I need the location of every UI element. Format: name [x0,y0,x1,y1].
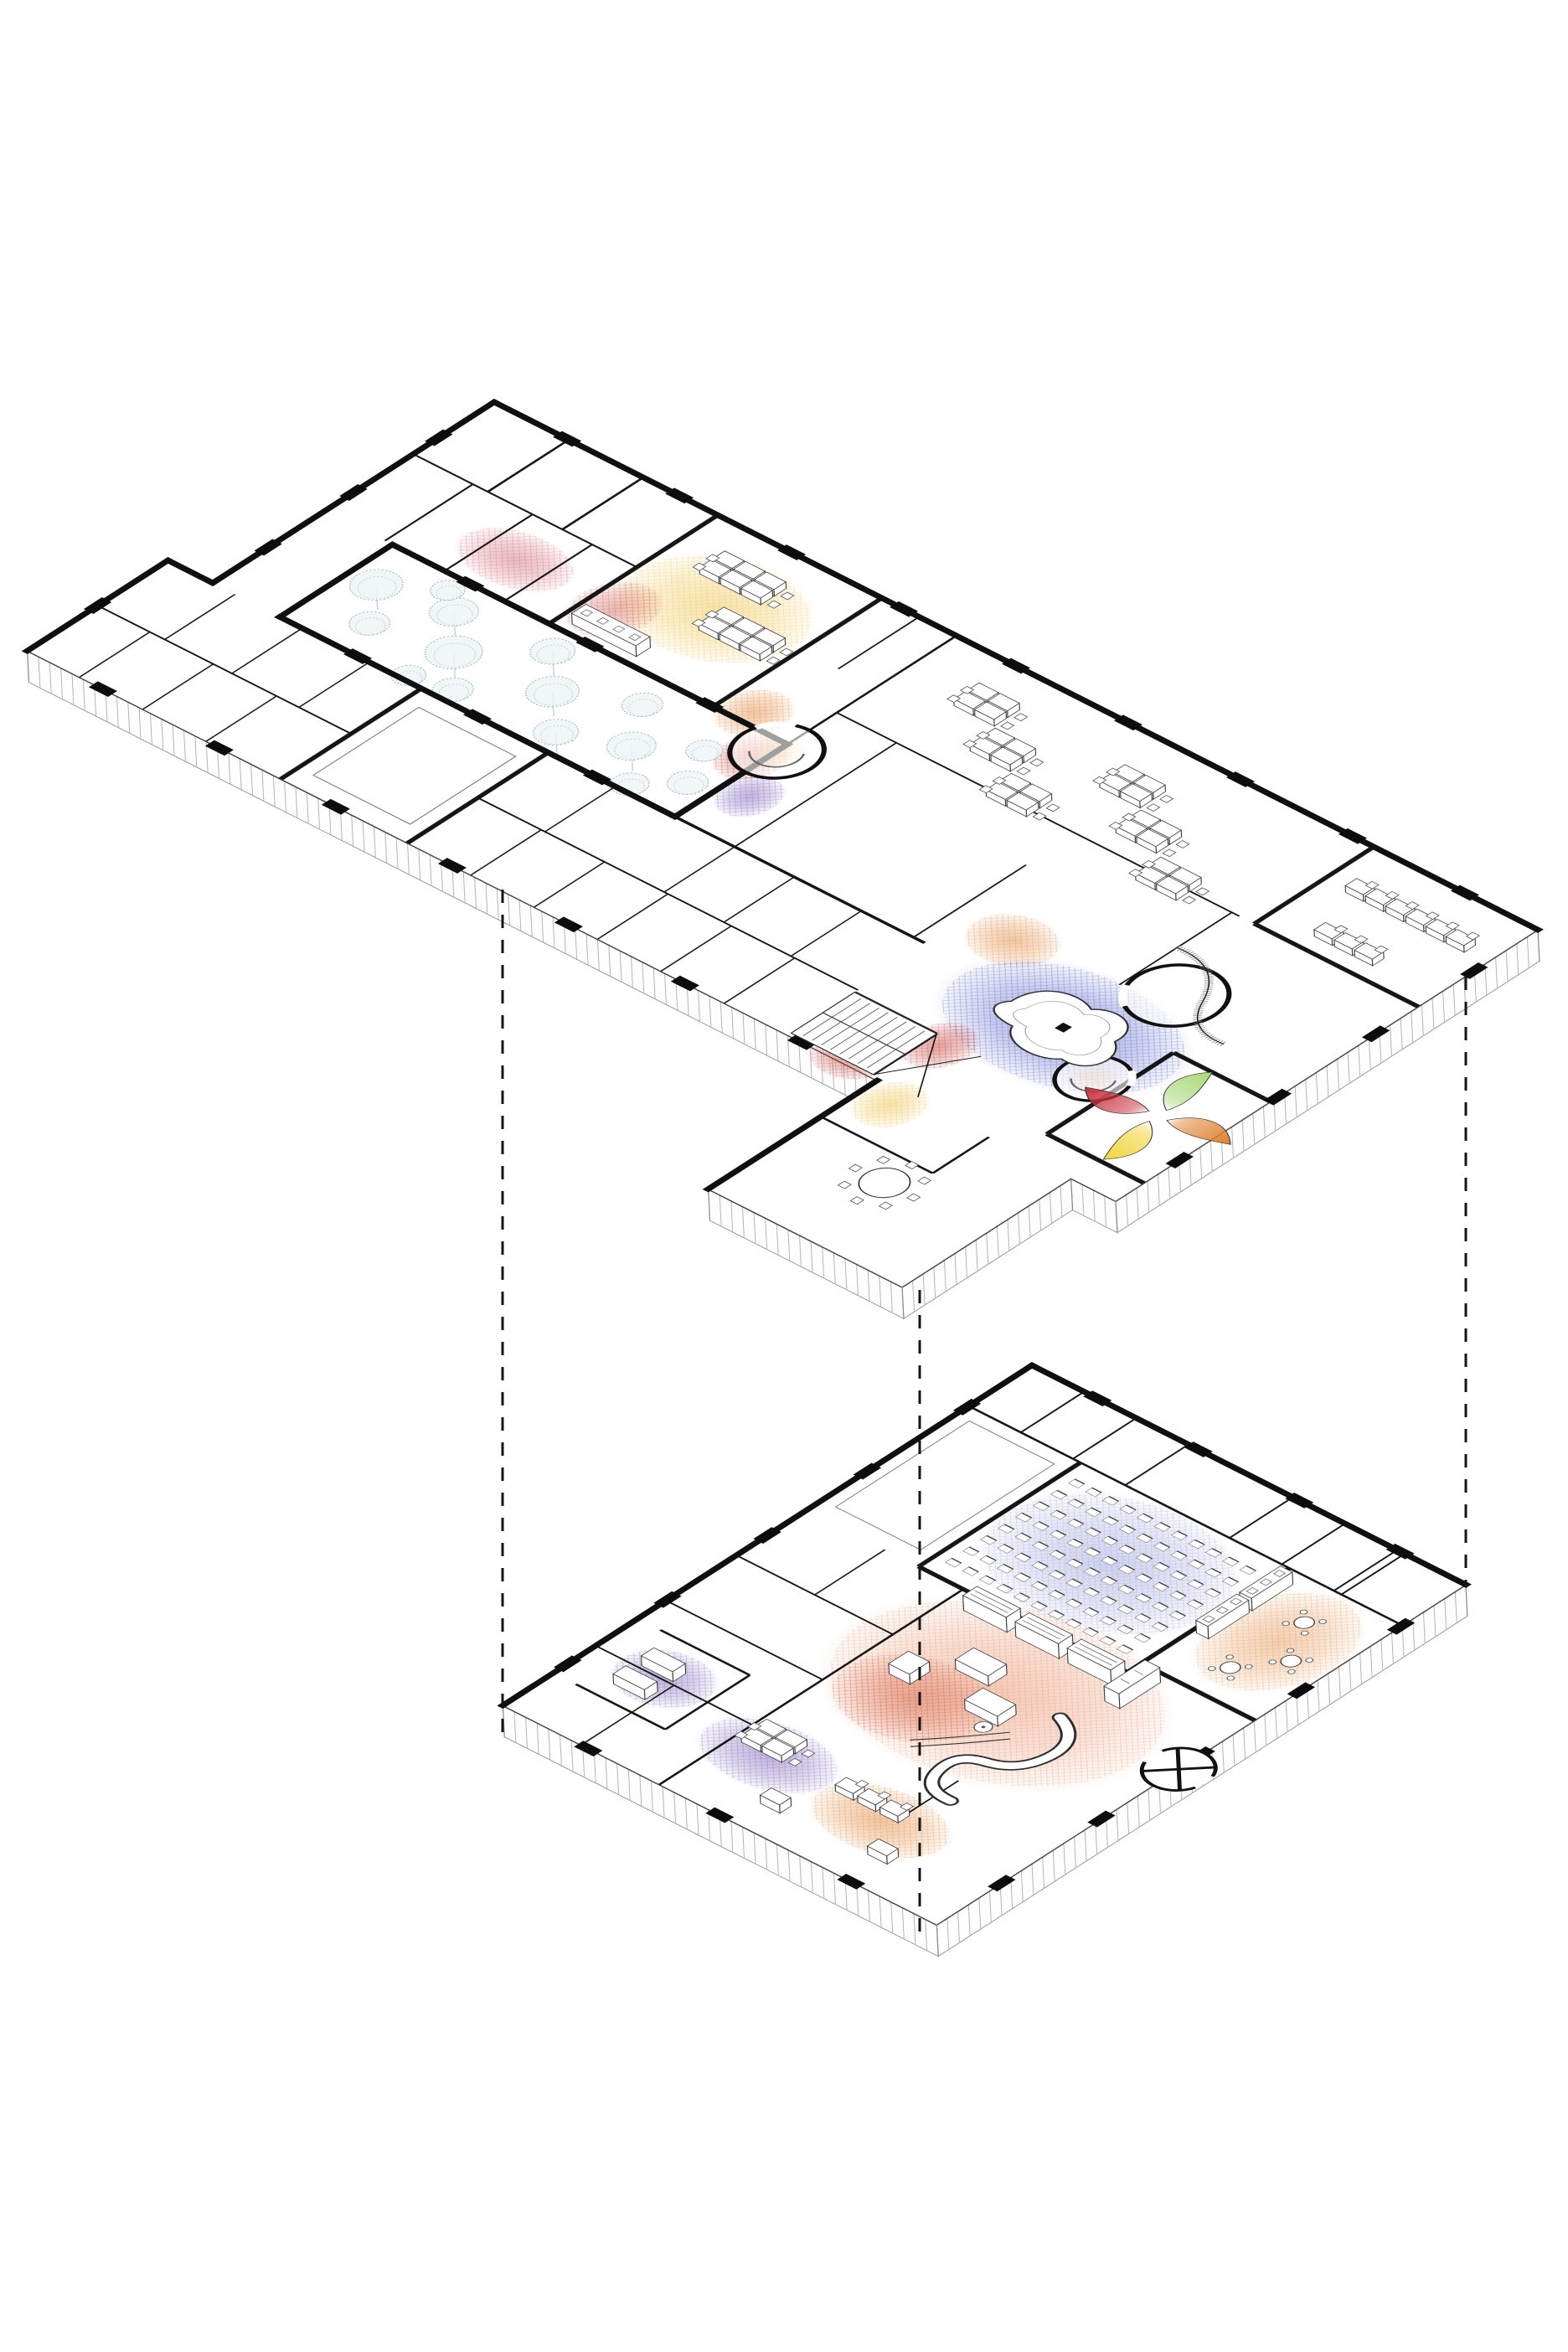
tree-canopy [613,689,671,722]
tree [341,607,399,641]
drawing-page: { "canvas": { "width": 1872, "height": 2… [0,0,1568,2352]
tree [412,629,496,677]
tree-canopy [596,726,666,766]
exploded-axonometric-floor-plans [0,0,1568,2352]
floor-slab [0,379,1538,1310]
tree [613,689,671,722]
tree [592,726,670,771]
lower-floor-plate [472,1360,1499,1957]
tree-canopy [341,607,399,641]
tree [512,670,593,716]
tree-canopy [515,670,591,713]
upper-floor-plate [0,374,1568,1342]
tree-canopy [413,629,494,675]
